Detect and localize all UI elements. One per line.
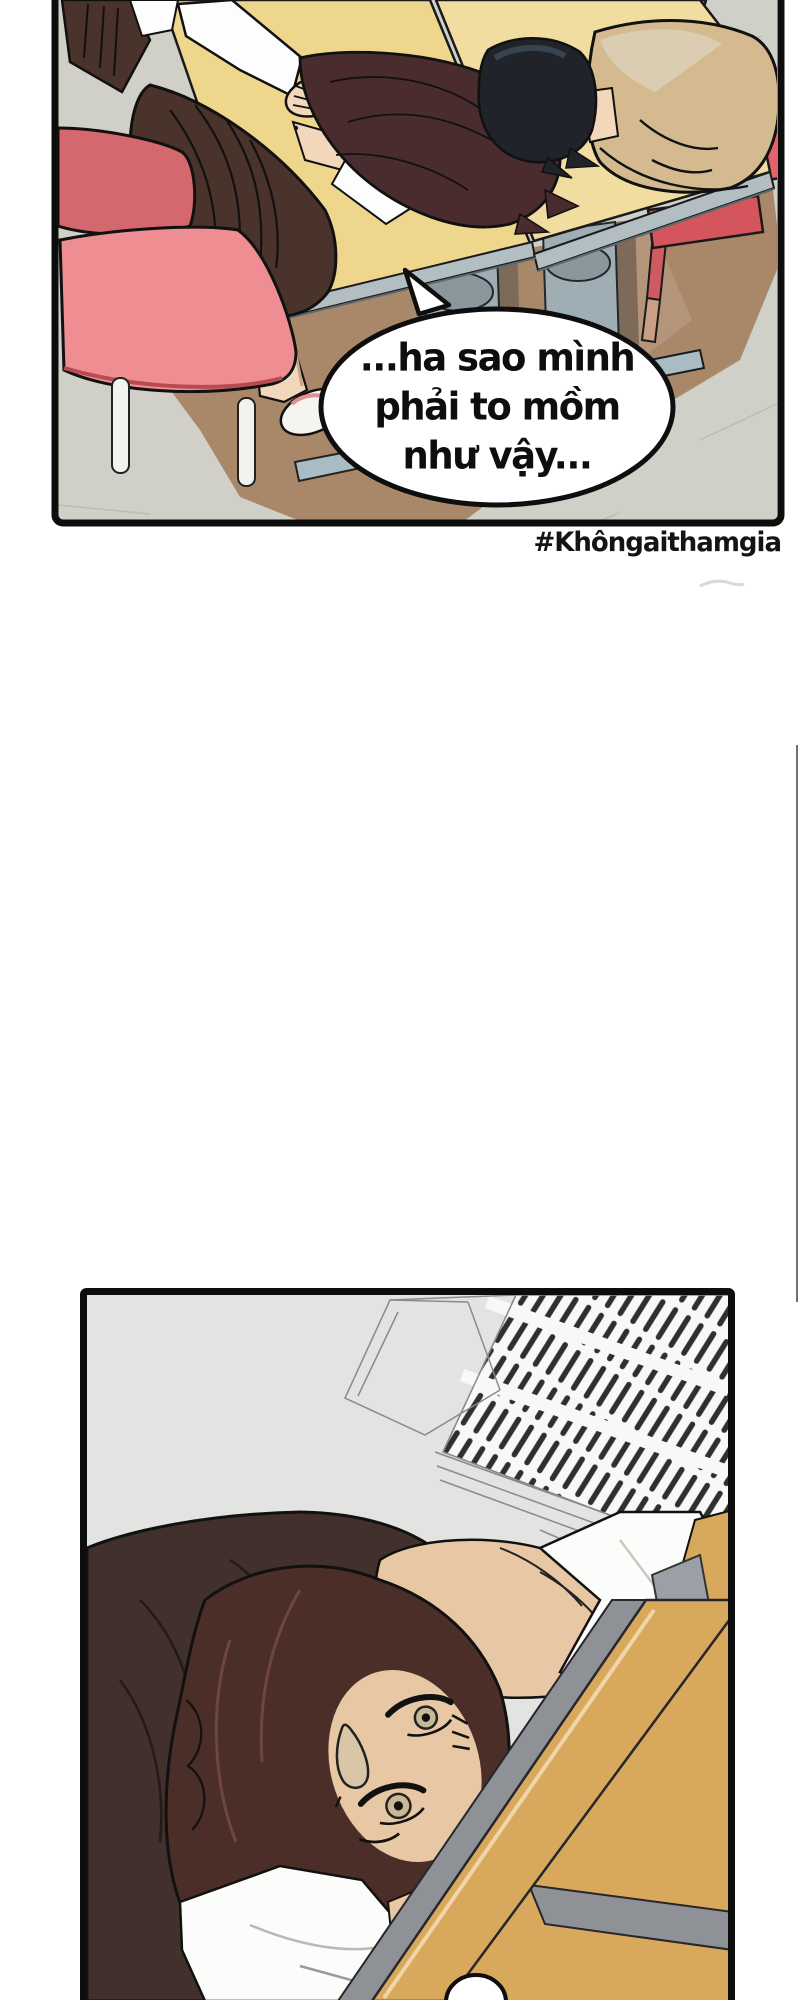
panel-2 bbox=[84, 1292, 736, 2000]
chair-leg bbox=[112, 378, 129, 473]
chair-leg bbox=[238, 398, 255, 486]
webtoon-page: ...ha sao mình phải to mồm như vậy... #K… bbox=[0, 0, 800, 2000]
speech-bubble-text: ...ha sao mình phải to mồm như vậy... bbox=[321, 333, 673, 480]
comic-artwork bbox=[0, 0, 800, 2000]
faint-smudge bbox=[700, 581, 744, 586]
hashtag-caption: #Khôngaithamgia bbox=[500, 527, 781, 560]
speech-line-3: như vậy... bbox=[321, 431, 673, 480]
speech-line-1: ...ha sao mình bbox=[321, 333, 673, 382]
speech-line-2: phải to mồm bbox=[321, 382, 673, 431]
